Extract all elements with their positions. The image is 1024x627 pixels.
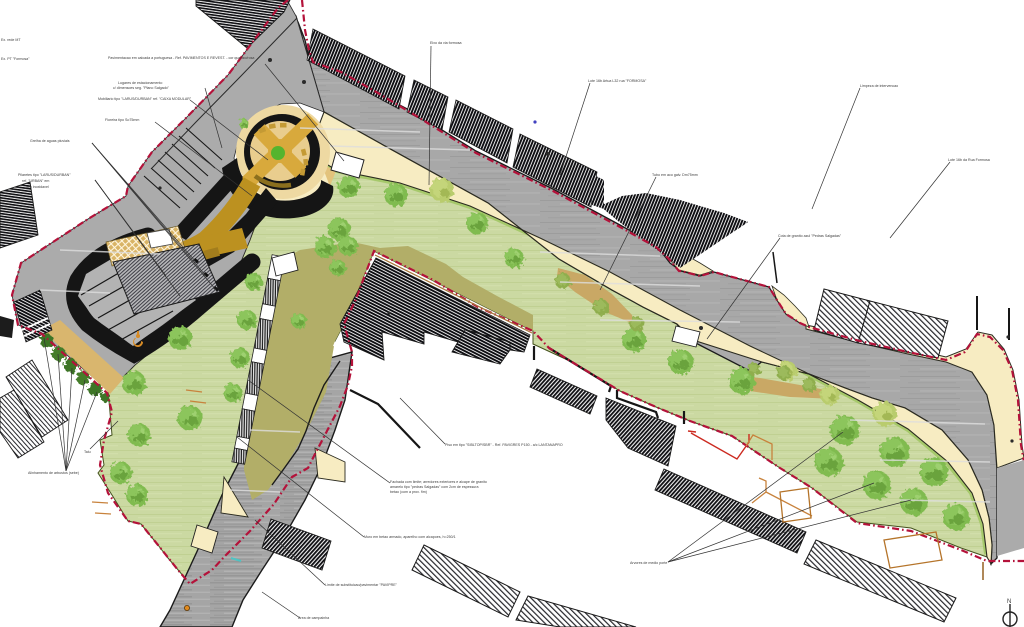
svg-text:Eixo da via formosa: Eixo da via formosa: [430, 41, 462, 45]
svg-text:Cota de granito azul "Pedras S: Cota de granito azul "Pedras Salgadas": [778, 234, 842, 238]
svg-text:amarelo tipo "pedras Salgadas": amarelo tipo "pedras Salgadas" com 2cm d…: [390, 485, 478, 489]
svg-text:Grelha de aguas pluviais: Grelha de aguas pluviais: [30, 139, 70, 143]
svg-text:N: N: [1007, 599, 1011, 605]
svg-text:c/ dimensoes seg. "Plano Salga: c/ dimensoes seg. "Plano Salgado": [113, 86, 170, 90]
svg-text:Mobiliario tipo "LARUS/DURBAN": Mobiliario tipo "LARUS/DURBAN" ref. "CAI…: [98, 97, 192, 101]
svg-text:Area de campainha: Area de campainha: [298, 616, 329, 620]
svg-text:Limite de substituicao/pavimen: Limite de substituicao/pavimentar "PAVIP…: [325, 583, 398, 587]
svg-text:Lote 16b Artua L32 rua "FORMOS: Lote 16b Artua L32 rua "FORMOSA": [588, 79, 647, 83]
svg-text:Piso em tipo "SIBLTOP/SBR" - R: Piso em tipo "SIBLTOP/SBR" - Ref. PAVIGR…: [445, 443, 563, 447]
svg-text:Lugares de estacionamento: Lugares de estacionamento: [118, 81, 162, 85]
svg-text:Tubo em aco galv. Dm75mm: Tubo em aco galv. Dm75mm: [652, 173, 698, 177]
svg-text:betao (com a prox. fim): betao (com a prox. fim): [390, 490, 427, 494]
svg-text:Alinhamento de arbustos (sebe): Alinhamento de arbustos (sebe): [28, 471, 79, 475]
svg-text:Talu: Talu: [84, 450, 91, 454]
svg-text:Ex. rede MT: Ex. rede MT: [1, 38, 21, 42]
svg-text:Floreira tipo So75mm: Floreira tipo So75mm: [105, 118, 139, 122]
svg-text:Ex. PT "Formosa": Ex. PT "Formosa": [1, 57, 30, 61]
svg-text:Pilaretes tipo "LARUS/DURBAN": Pilaretes tipo "LARUS/DURBAN": [18, 173, 71, 177]
svg-text:Fachada com limite; arredores: Fachada com limite; arredores exteriores…: [390, 480, 487, 484]
svg-text:Pavimentacao em calcada a port: Pavimentacao em calcada a portuguesa - R…: [108, 56, 254, 60]
svg-text:Limpeza de intervencao: Limpeza de intervencao: [860, 84, 898, 88]
svg-text:Muro em betao armado, aparelho: Muro em betao armado, aparelho com alcap…: [364, 535, 456, 539]
svg-text:Lote 16b da Rua Formosa: Lote 16b da Rua Formosa: [948, 158, 990, 162]
svg-text:ref. "URBAN" em: ref. "URBAN" em: [22, 179, 49, 183]
svg-text:Arvores de medio porte: Arvores de medio porte: [630, 561, 667, 565]
svg-text:aco inoxidavel: aco inoxidavel: [26, 185, 49, 189]
